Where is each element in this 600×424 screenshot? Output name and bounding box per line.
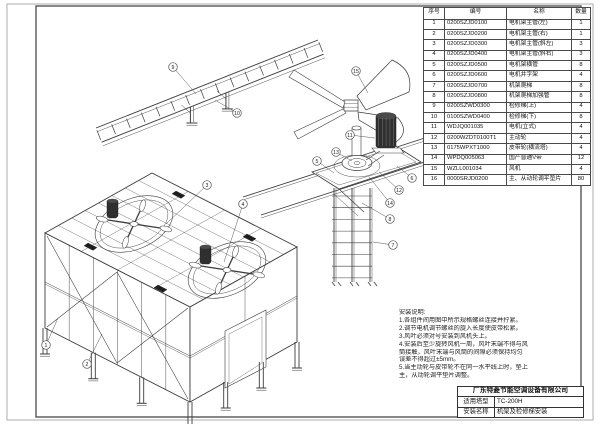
parts-table-row: 1 0200SZJD0100 电机架主管(左) 1 [424, 19, 591, 29]
part-no: 1 [424, 19, 445, 29]
parts-table-row: 5 0200SZJD0500 电机架横管 8 [424, 61, 591, 71]
part-code: WZLL001034 [445, 164, 507, 174]
part-name: 电机架横管 [507, 61, 572, 71]
part-no: 6 [424, 71, 445, 81]
svg-text:5: 5 [316, 159, 319, 165]
part-qty: 80 [572, 175, 591, 185]
parts-table-row: 4 0200SZJD0400 电机架主管(斜右) 3 [424, 50, 591, 60]
svg-text:7: 7 [392, 243, 395, 249]
part-qty: 4 [572, 164, 591, 174]
drawing-sheet: 123456789101112131415 序号 编号 名称 数量 1 0200… [0, 0, 600, 424]
title-block-company-row: 广东特菱节能空调设备有限公司 [458, 387, 584, 397]
parts-table-row: 6 0200SZJD0600 电机井字架 4 [424, 71, 591, 81]
parts-table-row: 2 0200SZJD0200 电机架主管(右) 1 [424, 29, 591, 39]
col-header-qty: 数量 [572, 8, 591, 20]
part-name: 机架爬梯 [507, 81, 572, 91]
part-code: WPDQ005063 [445, 154, 507, 164]
part-qty: 8 [572, 92, 591, 102]
part-code: 0200SZJD0100 [445, 19, 507, 29]
parts-table-row: 3 0200SZJD0300 电机架主管(斜左) 3 [424, 40, 591, 50]
part-qty: 8 [572, 113, 591, 123]
installation-notes: 安装说明: 1.各组件间用图中所示规格螺丝连接并拧紧。 2.调节电机调节螺丝的旋… [399, 309, 571, 380]
part-no: 8 [424, 92, 445, 102]
parts-table-row: 8 0200SZJD0800 机架爬梯加强管 8 [424, 92, 591, 102]
part-code: 0200SZJD0300 [445, 40, 507, 50]
callout-12: 12 [379, 172, 403, 194]
title-block-install-row: 安装名称 机架及检修梯安装 [458, 407, 584, 417]
part-no: 7 [424, 81, 445, 91]
svg-text:13: 13 [333, 150, 339, 156]
col-header-name: 名称 [507, 8, 572, 20]
part-code: 0000SRJD0200 [445, 175, 507, 185]
note-line: 1.各组件间用图中所示规格螺丝连接并拧紧。 [399, 317, 571, 325]
part-code: 0200SZJD0700 [445, 81, 507, 91]
part-no: 10 [424, 113, 445, 123]
part-code: 0200SZJD0800 [445, 92, 507, 102]
notes-lines: 1.各组件间用图中所示规格螺丝连接并拧紧。 2.调节电机调节螺丝的旋入长度使皮带… [399, 317, 571, 380]
parts-table-row: 16 0000SRJD0200 主、从动轮调平垫片 80 [424, 175, 591, 185]
part-no: 9 [424, 102, 445, 112]
part-name: 皮带轮(横流塔) [507, 144, 572, 154]
parts-table-row: 12 0200WZDT0100T1 主动轮 4 [424, 133, 591, 143]
svg-text:10: 10 [234, 111, 240, 117]
part-name: 检修梯(下) [507, 113, 572, 123]
part-name: 国产普通V带 [507, 154, 572, 164]
svg-text:1: 1 [45, 343, 48, 349]
part-qty: 12 [572, 154, 591, 164]
svg-text:3: 3 [206, 183, 209, 189]
part-qty: 4 [572, 71, 591, 81]
parts-table-body: 1 0200SZJD0100 电机架主管(左) 1 2 0200SZJD0200… [424, 19, 591, 185]
part-name: 电机架主管(右) [507, 29, 572, 39]
callout-13: 13 [332, 148, 352, 161]
part-no: 3 [424, 40, 445, 50]
notes-title: 安装说明: [399, 309, 571, 317]
part-no: 2 [424, 29, 445, 39]
model-value: TC-200H [495, 397, 584, 407]
part-no: 12 [424, 133, 445, 143]
parts-table-row: 10 0100SZWD0400 检修梯(下) 8 [424, 113, 591, 123]
col-header-no: 序号 [424, 8, 445, 20]
svg-text:2: 2 [86, 362, 89, 368]
title-block-model-row: 适用塔型 TC-200H [458, 397, 584, 407]
install-value: 机架及检修梯安装 [495, 407, 584, 417]
svg-text:8: 8 [389, 217, 392, 223]
part-name: 检修梯(上) [507, 102, 572, 112]
parts-table: 序号 编号 名称 数量 1 0200SZJD0100 电机架主管(左) 1 2 … [423, 7, 591, 186]
part-qty: 3 [572, 40, 591, 50]
part-name: 机架爬梯加强管 [507, 92, 572, 102]
col-header-code: 编号 [445, 8, 507, 20]
parts-table-row: 15 WZLL001034 风机 4 [424, 164, 591, 174]
svg-text:11: 11 [347, 133, 352, 139]
part-qty: 4 [572, 123, 591, 133]
part-qty: 1 [572, 29, 591, 39]
part-no: 4 [424, 50, 445, 60]
part-qty: 4 [572, 102, 591, 112]
part-no: 11 [424, 123, 445, 133]
note-line: 误差不得超过±5mm。 [399, 356, 571, 364]
parts-table-header: 序号 编号 名称 数量 [424, 8, 591, 20]
svg-text:14: 14 [387, 201, 393, 207]
model-label: 适用塔型 [458, 397, 495, 407]
note-line: 3.风叶必须对号安装到风机头上。 [399, 333, 571, 341]
part-name: 电机架主管(左) [507, 19, 572, 29]
part-code: 0200WZDT0100T1 [445, 133, 507, 143]
part-name: 电机井字架 [507, 71, 572, 81]
part-code: 0200SZJD0200 [445, 29, 507, 39]
part-name: 电机架主管(斜右) [507, 50, 572, 60]
part-qty: 1 [572, 19, 591, 29]
part-code: 0200SZJD0500 [445, 61, 507, 71]
part-no: 5 [424, 61, 445, 71]
callout-14: 14 [369, 177, 394, 207]
note-line: 2.调节电机调节螺丝的旋入长度使皮带松紧。 [399, 325, 571, 333]
part-qty: 4 [572, 144, 591, 154]
parts-table-row: 13 0175WPXT1000 皮带轮(横流塔) 4 [424, 144, 591, 154]
parts-table-row: 7 0200SZJD0700 机架爬梯 8 [424, 81, 591, 91]
callout-9: 9 [169, 63, 196, 94]
part-code: WDJQ001035 [445, 123, 507, 133]
part-name: 电机架主管(斜左) [507, 40, 572, 50]
company-name: 广东特菱节能空调设备有限公司 [458, 387, 584, 397]
part-qty: 4 [572, 133, 591, 143]
part-qty: 8 [572, 61, 591, 71]
svg-text:6: 6 [411, 176, 414, 182]
part-no: 16 [424, 175, 445, 185]
part-code: 0200SZWD0300 [445, 102, 507, 112]
part-no: 14 [424, 154, 445, 164]
parts-table-row: 14 WPDQ005063 国产普通V带 12 [424, 154, 591, 164]
note-line: 筒接触，风叶末端与风筒的间隙必须保持均匀 [399, 349, 571, 357]
part-code: 0100SZWD0400 [445, 113, 507, 123]
parts-table-row: 11 WDJQ001035 电机(立式) 4 [424, 123, 591, 133]
note-line: 主，从动轮调平垫片调整。 [399, 372, 571, 380]
part-qty: 3 [572, 50, 591, 60]
title-block: 广东特菱节能空调设备有限公司 适用塔型 TC-200H 安装名称 机架及检修梯安… [457, 386, 584, 418]
callout-7: 7 [373, 241, 397, 250]
part-name: 主、从动轮调平垫片 [507, 175, 572, 185]
part-name: 风机 [507, 164, 572, 174]
install-label: 安装名称 [458, 407, 495, 417]
part-name: 电机(立式) [507, 123, 572, 133]
svg-text:12: 12 [396, 188, 402, 194]
part-code: 0200SZJD0400 [445, 50, 507, 60]
note-line: 4.安装后至少旋转风机一周，风叶末端不得与风 [399, 341, 571, 349]
note-line: 5.当主动轮与皮带轮不在同一水平线上时，垫上 [399, 364, 571, 372]
part-no: 15 [424, 164, 445, 174]
part-code: 0175WPXT1000 [445, 144, 507, 154]
svg-text:4: 4 [242, 202, 245, 208]
part-code: 0200SZJD0600 [445, 71, 507, 81]
svg-text:15: 15 [353, 69, 359, 75]
part-no: 13 [424, 144, 445, 154]
svg-text:9: 9 [172, 65, 175, 71]
parts-table-row: 9 0200SZWD0300 检修梯(上) 4 [424, 102, 591, 112]
part-name: 主动轮 [507, 133, 572, 143]
part-qty: 8 [572, 81, 591, 91]
